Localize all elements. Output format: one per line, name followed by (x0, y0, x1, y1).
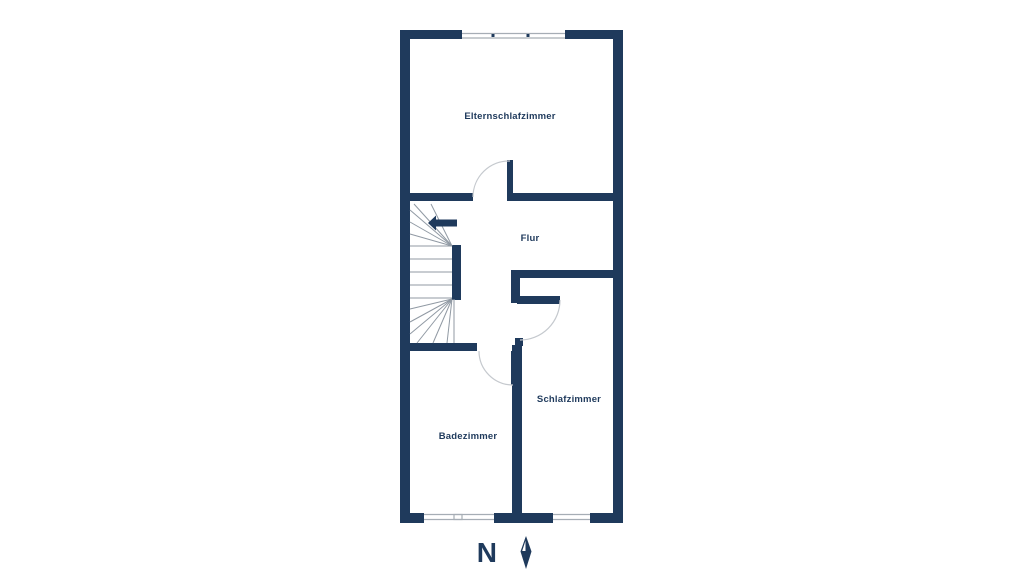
door-leaf (517, 296, 560, 304)
window-top (462, 34, 565, 39)
north-indicator (521, 536, 532, 569)
wall-right (613, 30, 623, 523)
room-label-badezimmer: Badezimmer (439, 432, 498, 442)
room-label-flur: Flur (521, 234, 540, 244)
window-bottom-left (424, 515, 494, 520)
door-swing-arc (520, 300, 560, 340)
north-label: N (477, 539, 503, 567)
inner-walls (400, 193, 613, 513)
wall-bottom-right-segment (590, 513, 623, 523)
staircase (410, 204, 457, 343)
wall-top-right-segment (565, 30, 623, 39)
stairs-up-arrow-icon (428, 216, 457, 231)
door-elternschlafzimmer (473, 160, 513, 201)
wall-left (400, 30, 410, 523)
wall-elternschlafzimmer-right (508, 193, 613, 201)
window-mullion (527, 34, 530, 37)
window-bottom-right (553, 515, 590, 520)
compass-needle-highlight (522, 538, 527, 552)
door-schlafzimmer (517, 296, 560, 340)
wall-bottom-left-segment (400, 513, 424, 523)
wall-flur-schlafzimmer (515, 270, 613, 278)
wall-top-left-segment (400, 30, 462, 39)
window-mullion (454, 515, 462, 520)
floor-plan-page: Elternschlafzimmer Flur Badezimmer Schla… (0, 0, 1024, 576)
floor-plan-drawing (0, 0, 1024, 576)
door-badezimmer (479, 351, 517, 385)
door-swing-arc (479, 351, 513, 385)
stair-straight-treads (410, 259, 452, 298)
wall-stairwell (452, 245, 461, 300)
door-leaf (507, 160, 513, 201)
door-swing-arc (473, 161, 510, 197)
wall-badezimmer-top (400, 343, 477, 351)
window-mullion (492, 34, 495, 37)
room-label-elternschlafzimmer: Elternschlafzimmer (464, 112, 555, 122)
door-leaf (511, 351, 517, 385)
wall-bottom-middle-segment (494, 513, 553, 523)
wall-door-jamb-stub (515, 338, 523, 346)
stair-lower-winders (410, 299, 454, 343)
wall-elternschlafzimmer-left (400, 193, 473, 201)
room-label-schlafzimmer: Schlafzimmer (537, 395, 601, 405)
